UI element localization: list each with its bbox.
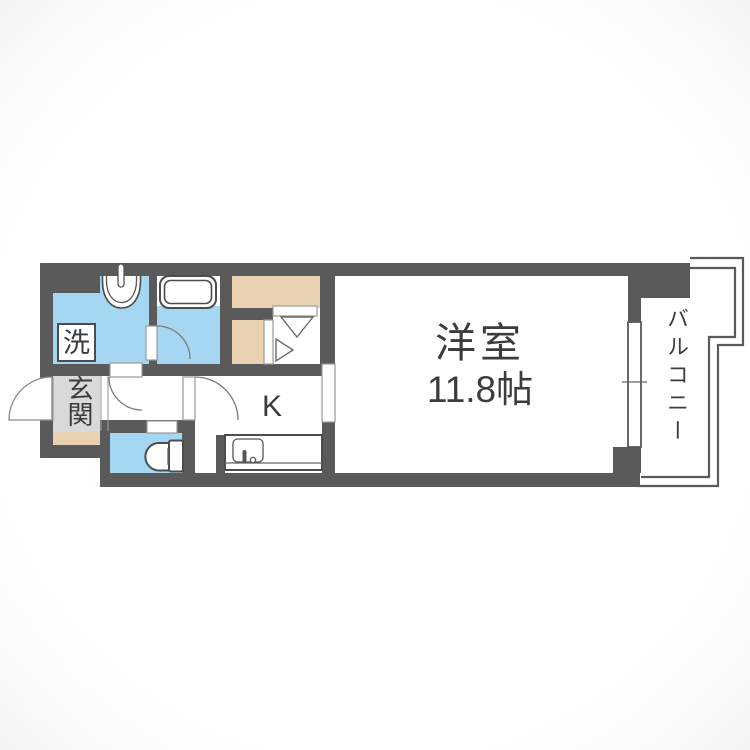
wall-top [40, 263, 690, 276]
kitchen-door [183, 377, 195, 420]
balcony-label: バルコニー [656, 289, 688, 465]
washroom-door [110, 363, 142, 377]
closet-open-mark-down [281, 317, 313, 337]
entrance-label: 玄関 [60, 368, 92, 434]
wall-closet-right [320, 276, 335, 364]
wall-bottom [100, 473, 640, 487]
laundry-label: 洗 [58, 329, 95, 357]
washroom-door-swing [109, 377, 142, 410]
kitchen-counter [225, 435, 322, 470]
closet-door-side [264, 320, 273, 364]
entrance-door-swing [9, 377, 52, 420]
kitchen-label: K [250, 391, 294, 423]
toilet-icon [145, 441, 183, 472]
closet-open-mark-right [276, 339, 293, 361]
closet-side [232, 320, 264, 364]
main-room-size-label: 11.8帖 [388, 371, 572, 410]
wall-bath-right [220, 276, 232, 366]
wall-entrance-bottom [40, 445, 110, 458]
wall-closet-strip [232, 308, 273, 320]
closet-door-top [273, 306, 317, 316]
main-room-sliding-door [322, 364, 335, 422]
bathtub-icon [160, 276, 216, 308]
wall-washroom-corner [53, 276, 100, 293]
wall-left [40, 263, 53, 458]
floor-plan-drawing [0, 0, 750, 750]
faucet-icon [243, 450, 247, 463]
toilet-door [147, 421, 177, 433]
wall-counter-stub [216, 435, 225, 473]
kitchen-sink-icon [233, 439, 263, 462]
floor-plan-image: 洋室 11.8帖 K 洗 玄関 バルコニー [0, 0, 750, 750]
balcony-window [628, 322, 641, 447]
kitchen-door-swing [195, 377, 238, 420]
closet-top [232, 276, 320, 308]
bathroom-door [146, 326, 157, 360]
wall-window-pier-bottom [613, 447, 641, 473]
main-room-label: 洋室 [398, 322, 562, 365]
bathroom-floor [157, 306, 220, 364]
wall-kitchen-right [322, 422, 335, 473]
